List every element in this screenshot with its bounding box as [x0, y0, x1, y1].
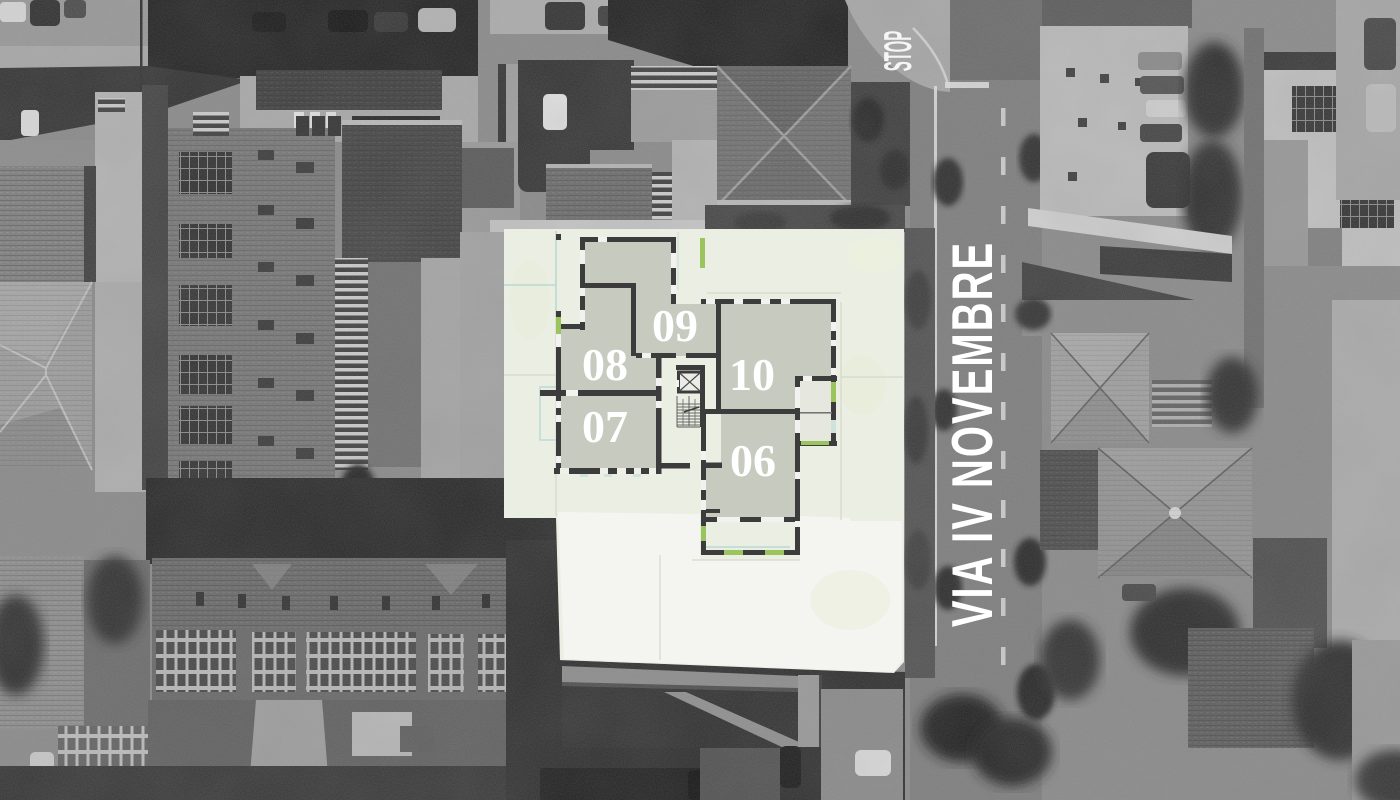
svg-text:06: 06: [730, 435, 776, 486]
svg-text:09: 09: [652, 300, 698, 351]
svg-text:VIA IV NOVEMBRE: VIA IV NOVEMBRE: [940, 241, 1005, 627]
svg-text:08: 08: [582, 339, 628, 390]
svg-text:07: 07: [582, 401, 628, 452]
svg-text:10: 10: [729, 349, 775, 400]
svg-text:STOP: STOP: [877, 31, 921, 72]
